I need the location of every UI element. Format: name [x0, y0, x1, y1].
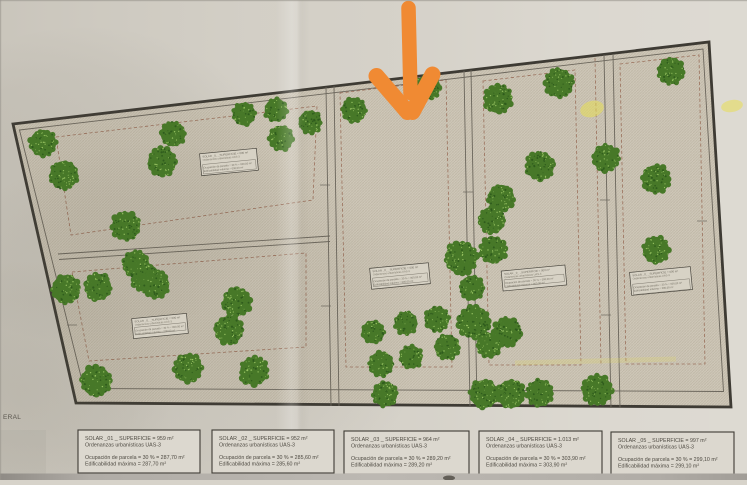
svg-text:Ocupación de parcela = 30 % =: Ocupación de parcela = 30 % = 289,20 m² — [351, 456, 451, 462]
svg-text:Ocupación de parcela = 30 % =: Ocupación de parcela = 30 % = 287,70 m² — [85, 455, 185, 461]
svg-text:SOLAR _03 _ SUPERFICIE = 964 m: SOLAR _03 _ SUPERFICIE = 964 m² — [351, 437, 440, 443]
svg-text:Ocupación de parcela = 30 % =: Ocupación de parcela = 30 % = 285,60 m² — [219, 455, 319, 461]
svg-text:SOLAR _04 _ SUPERFICIE = 1.013: SOLAR _04 _ SUPERFICIE = 1.013 m² — [486, 437, 579, 443]
svg-text:SOLAR _01 _ SUPERFICIE = 959 m: SOLAR _01 _ SUPERFICIE = 959 m² — [85, 436, 174, 442]
svg-text:Ordenanzas urbanísticas UAS-3: Ordenanzas urbanísticas UAS-3 — [219, 443, 295, 449]
svg-text:Ordenanzas urbanísticas UAS-3: Ordenanzas urbanísticas UAS-3 — [486, 444, 562, 450]
svg-text:Edificabilidad máxima = 303,90: Edificabilidad máxima = 303,90 m² — [486, 463, 567, 469]
svg-text:ERAL: ERAL — [3, 414, 21, 421]
svg-text:Ordenanzas urbanísticas UAS-3: Ordenanzas urbanísticas UAS-3 — [85, 443, 161, 449]
svg-text:Ocupación de parcela = 30 % =: Ocupación de parcela = 30 % = 299,10 m² — [618, 457, 718, 463]
svg-text:Edificabilidad máxima = 287,70: Edificabilidad máxima = 287,70 m² — [85, 462, 166, 468]
svg-text:SOLAR _02 _ SUPERFICIE = 952 m: SOLAR _02 _ SUPERFICIE = 952 m² — [219, 436, 308, 442]
svg-text:Ordenanzas urbanísticas UAS-3: Ordenanzas urbanísticas UAS-3 — [351, 444, 427, 450]
svg-text:Ordenanzas urbanísticas UAS-3: Ordenanzas urbanísticas UAS-3 — [618, 445, 694, 451]
svg-text:Edificabilidad máxima = 289,20: Edificabilidad máxima = 289,20 m² — [351, 463, 432, 469]
svg-text:Edificabilidad máxima = 299,10: Edificabilidad máxima = 299,10 m² — [618, 464, 699, 470]
svg-text:SOLAR _05 _ SUPERFICIE = 997 m: SOLAR _05 _ SUPERFICIE = 997 m² — [618, 438, 707, 444]
svg-text:Edificabilidad máxima = 285,60: Edificabilidad máxima = 285,60 m² — [219, 462, 300, 468]
svg-text:Ocupación de parcela = 30 % =: Ocupación de parcela = 30 % = 303,90 m² — [486, 456, 586, 462]
